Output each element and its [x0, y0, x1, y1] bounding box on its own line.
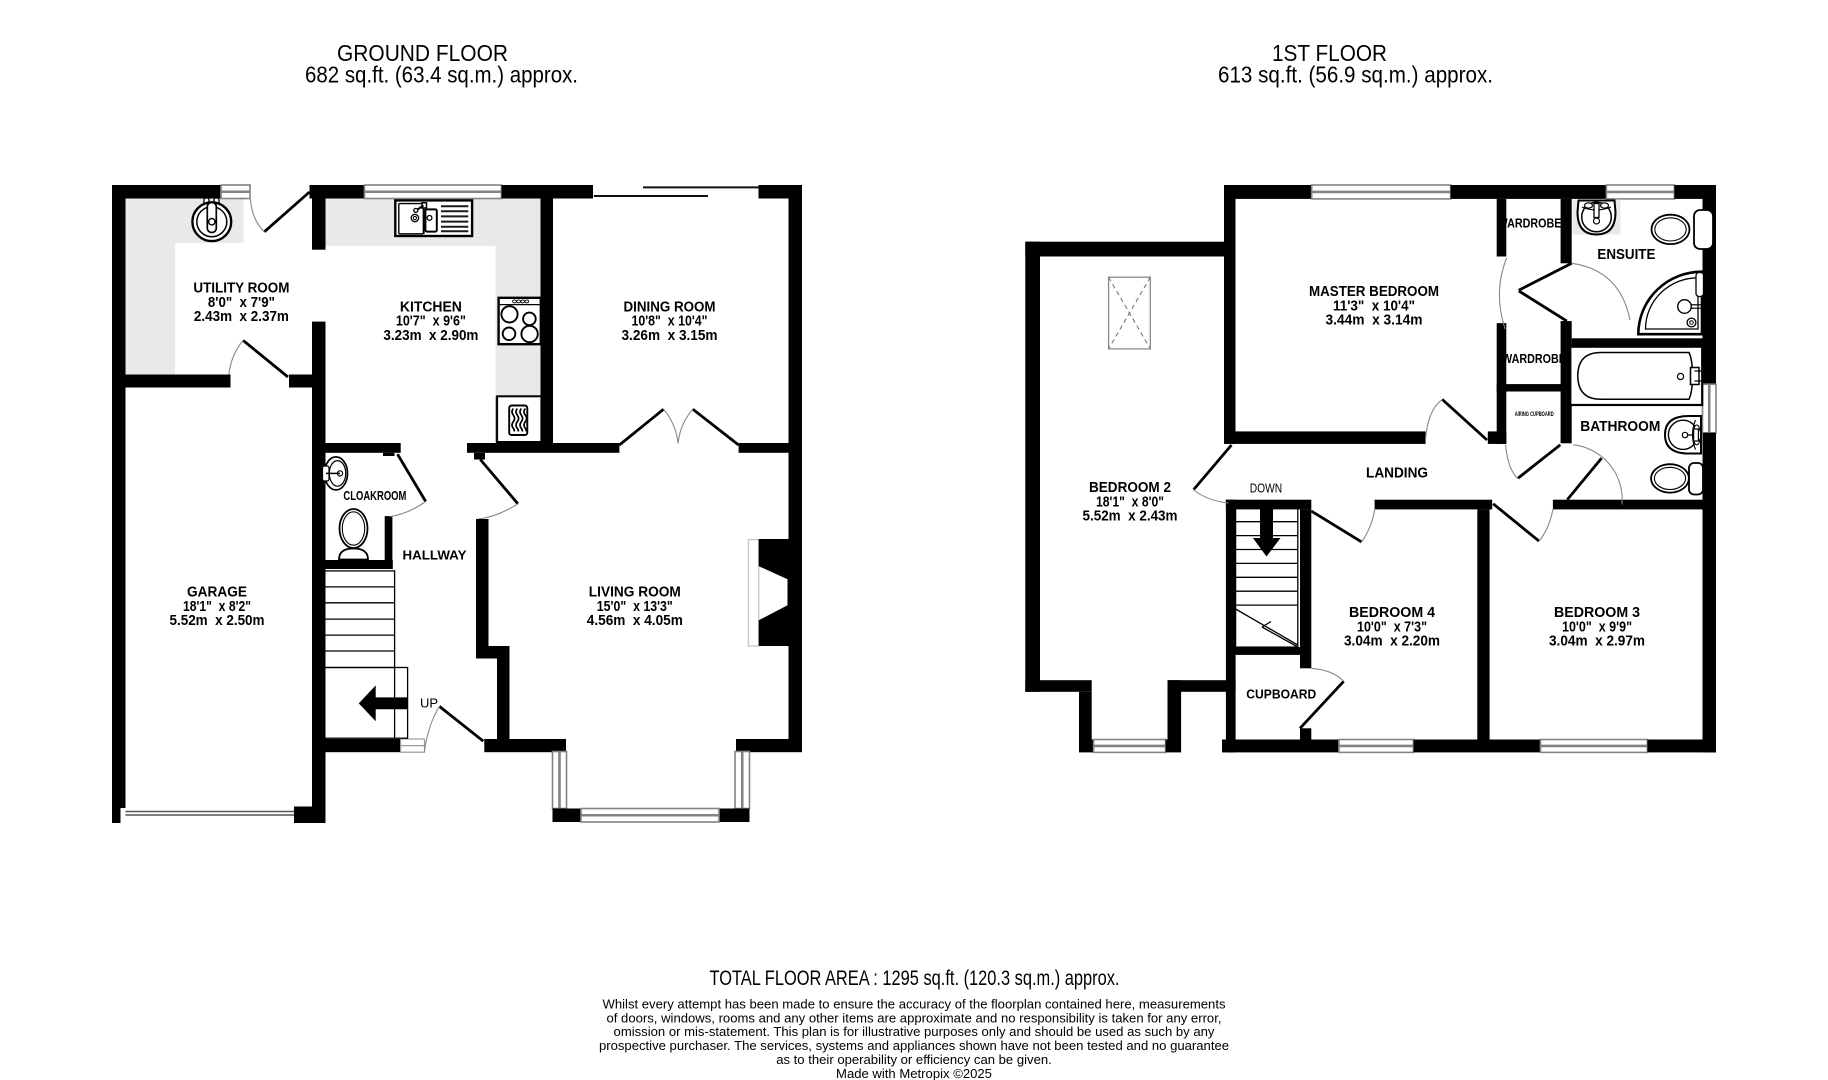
svg-text:3.23m x 2.90m: 3.23m x 2.90m: [383, 328, 478, 344]
svg-text:of doors, windows, rooms and a: of doors, windows, rooms and any other i…: [607, 1010, 1222, 1025]
svg-text:CUPBOARD: CUPBOARD: [1246, 687, 1316, 701]
svg-text:prospective purchaser. The ser: prospective purchaser. The services, sys…: [599, 1038, 1229, 1053]
svg-text:3.04m x 2.20m: 3.04m x 2.20m: [1344, 634, 1440, 650]
svg-text:WARDROBE: WARDROBE: [1502, 352, 1566, 366]
svg-text:DOWN: DOWN: [1250, 481, 1282, 496]
svg-text:Made with Metropix ©2025: Made with Metropix ©2025: [836, 1066, 992, 1080]
svg-text:TOTAL FLOOR AREA : 1295 sq.ft.: TOTAL FLOOR AREA : 1295 sq.ft. (120.3 sq…: [710, 966, 1120, 990]
svg-text:as to their operability or eff: as to their operability or efficiency ca…: [776, 1052, 1052, 1067]
svg-text:UP: UP: [420, 696, 438, 711]
svg-text:ENSUITE: ENSUITE: [1597, 247, 1655, 263]
svg-text:5.52m x 2.50m: 5.52m x 2.50m: [170, 613, 265, 629]
svg-text:613 sq.ft. (56.9 sq.m.) approx: 613 sq.ft. (56.9 sq.m.) approx.: [1218, 62, 1493, 88]
svg-text:3.26m x 3.15m: 3.26m x 3.15m: [622, 328, 718, 344]
svg-text:BATHROOM: BATHROOM: [1580, 419, 1660, 435]
svg-text:omission or mis-statement. Thi: omission or mis-statement. This plan is …: [614, 1024, 1215, 1039]
svg-text:2.43m x 2.37m: 2.43m x 2.37m: [194, 309, 289, 325]
svg-text:CLOAKROOM: CLOAKROOM: [343, 489, 406, 503]
svg-text:682 sq.ft. (63.4 sq.m.) approx: 682 sq.ft. (63.4 sq.m.) approx.: [305, 62, 578, 88]
svg-text:AIRING CUPBOARD: AIRING CUPBOARD: [1515, 412, 1554, 418]
svg-text:4.56m x 4.05m: 4.56m x 4.05m: [587, 613, 683, 629]
svg-text:Whilst every attempt has been: Whilst every attempt has been made to en…: [602, 996, 1225, 1011]
svg-text:5.52m x 2.43m: 5.52m x 2.43m: [1083, 509, 1178, 525]
svg-text:3.04m x 2.97m: 3.04m x 2.97m: [1549, 634, 1645, 650]
svg-text:WARDROBE: WARDROBE: [1498, 216, 1562, 230]
svg-text:LANDING: LANDING: [1366, 466, 1428, 482]
svg-text:3.44m x 3.14m: 3.44m x 3.14m: [1326, 313, 1423, 329]
svg-text:HALLWAY: HALLWAY: [403, 548, 467, 563]
